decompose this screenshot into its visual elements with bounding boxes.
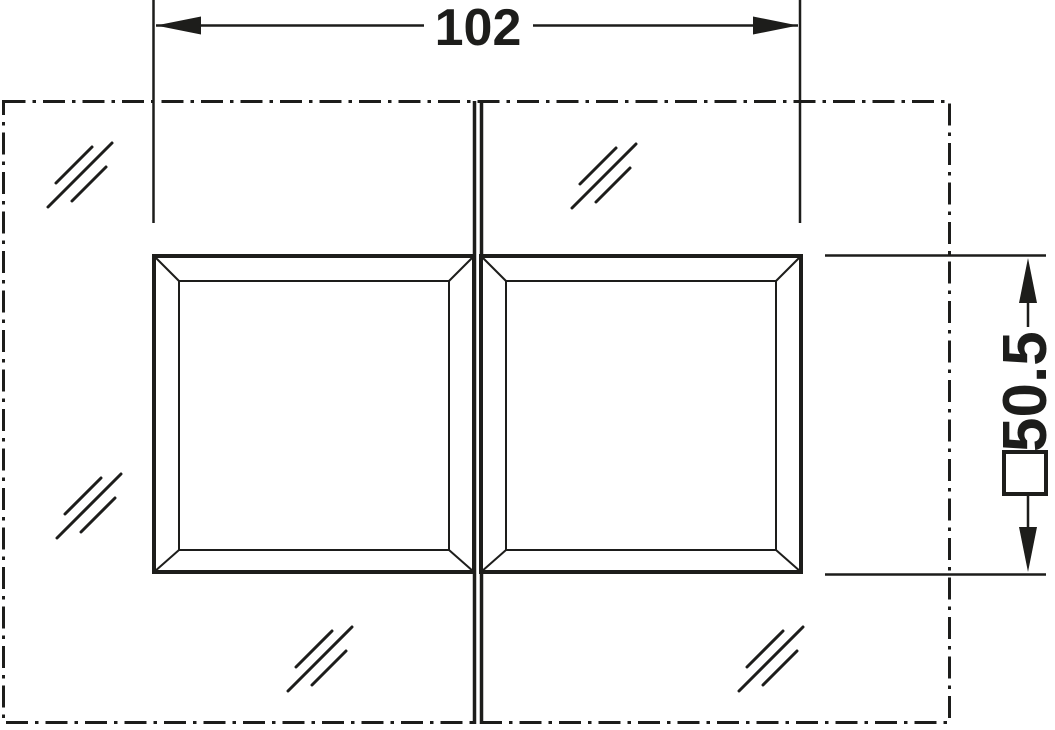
right-cutout <box>481 256 801 572</box>
dimension-width-value: 102 <box>435 0 522 57</box>
left-cutout <box>154 256 474 572</box>
glass-hatch-icon <box>739 627 803 691</box>
glass-hatch-icon <box>572 144 636 208</box>
dimension-height-value: 50.5 <box>991 331 1055 452</box>
arrow-right-icon <box>753 17 798 35</box>
arrow-left-icon <box>156 17 201 35</box>
drawing-svg: 102 50.5 <box>0 0 1055 730</box>
glass-hatch-icon <box>288 627 352 691</box>
left-cutout-outer <box>154 256 474 572</box>
right-cutout-outer <box>481 256 801 572</box>
technical-drawing: 102 50.5 <box>0 0 1055 730</box>
arrow-up-icon <box>1019 258 1037 303</box>
glass-panel-outline <box>4 102 950 723</box>
glass-hatch-icon <box>48 143 112 207</box>
line-art <box>4 0 1047 724</box>
glass-hatch-icon <box>57 474 121 538</box>
square-cutout-symbol-icon <box>1004 452 1046 494</box>
arrow-down-icon <box>1019 527 1037 572</box>
